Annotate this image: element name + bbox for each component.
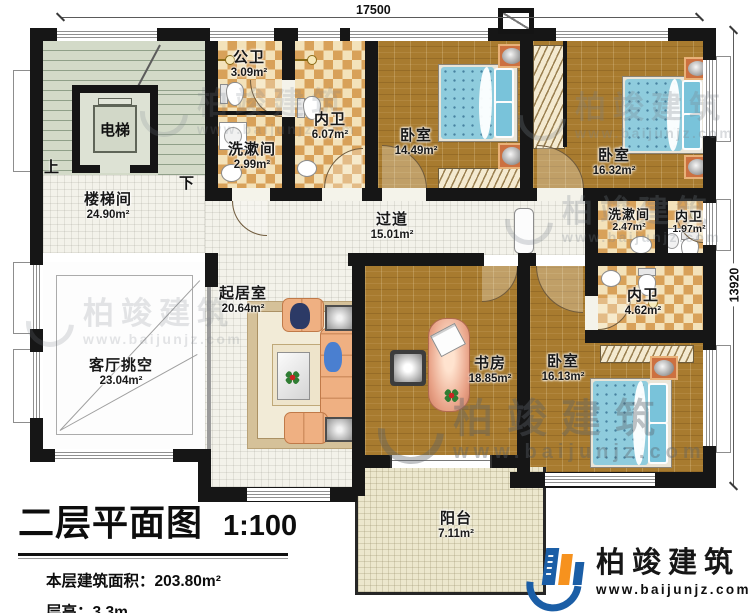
person-lounging (324, 342, 342, 372)
window (210, 28, 274, 41)
stair-down-label: 下 (179, 172, 194, 193)
room-label-hallway: 过道 15.01m² (350, 212, 434, 241)
exterior-sill (716, 345, 731, 453)
wall-hallway-bottom-c (585, 253, 716, 266)
window (57, 28, 157, 41)
bed-pillow (494, 68, 514, 105)
shower-drain (307, 55, 317, 65)
wall-living-study (352, 266, 365, 496)
watermark-logo-icon (495, 187, 563, 255)
floor-height-value: 3.3m (93, 604, 128, 613)
bed-pillow (494, 101, 514, 138)
wall-neiwei-mid-bottom (585, 330, 716, 343)
floor-height-line: 层高：3.3m (46, 600, 288, 613)
room-label-neiwei-small: 内卫 1.97m² (658, 210, 720, 236)
window (55, 449, 173, 462)
wall-hallway-bottom-b (518, 253, 536, 266)
door-gap (232, 188, 270, 201)
wall-neiwei-bedroom1 (365, 41, 378, 201)
floor-area-value: 203.80m² (155, 573, 221, 590)
dimension-right-value: 13920 (727, 264, 741, 307)
sink-icon (601, 270, 621, 287)
floor-area-label: 本层建筑面积： (46, 573, 155, 590)
watermark-name: 柏竣建筑 (575, 90, 727, 125)
watermark-url: www.baijunjz.com (83, 331, 242, 347)
watermark-logo-icon (508, 83, 576, 151)
sofa-main (320, 328, 356, 420)
watermark: 柏竣建筑 www.baijunjz.com (378, 398, 706, 464)
wall-living-void-stub (205, 253, 218, 287)
watermark: 柏竣建筑 www.baijunjz.com (518, 92, 734, 141)
window (556, 28, 668, 41)
wall-hallway-bottom-a (348, 253, 484, 266)
watermark-logo-icon (365, 385, 458, 478)
room-label-gongwei: 公卫 3.09m² (214, 50, 284, 79)
floor-height-label: 层高： (46, 604, 93, 613)
dimension-line-top (60, 17, 700, 18)
door-gap (322, 188, 362, 201)
room-label-neiwei-top: 内卫 6.07m² (295, 112, 365, 141)
dimension-top-value: 17500 (352, 3, 395, 17)
window (298, 28, 340, 41)
watermark-url: www.baijunjz.com (575, 125, 734, 141)
room-label-study: 书房 18.85m² (452, 356, 528, 385)
plan-scale: 1:100 (223, 510, 297, 543)
floor-plan-canvas: 电梯 柏竣建筑 www.baijunjz.com 柏竣建筑 www.baijun… (0, 0, 750, 613)
room-label-xishujian-top: 洗漱间 2.99m² (214, 142, 290, 171)
stair-treads-top (43, 41, 205, 91)
room-label-bedroom1: 卧室 14.49m² (378, 128, 454, 157)
stair-up-label: 上 (44, 156, 59, 177)
door-gap (585, 296, 598, 330)
company-logo-icon (528, 545, 586, 601)
company-url: www.baijunjz.com (596, 582, 750, 597)
flower-decor (285, 370, 300, 385)
tv-monitor (390, 350, 426, 386)
title-block: 二层平面图 1:100 本层建筑面积：203.80m² 层高：3.3m (18, 494, 288, 613)
person-sitting (290, 303, 310, 329)
nightstand (650, 356, 678, 380)
room-label-living: 起居室 20.64m² (204, 286, 282, 315)
room-label-void: 客厅挑空 23.04m² (68, 358, 174, 387)
plan-title: 二层平面图 (18, 494, 203, 546)
side-table-top (325, 305, 354, 331)
side-table-bottom (325, 417, 354, 442)
company-logo: 柏竣建筑 www.baijunjz.com (528, 545, 750, 601)
room-label-neiwei-mid: 内卫 4.62m² (606, 288, 680, 317)
sink-icon (297, 160, 317, 177)
window (545, 473, 655, 486)
chimney-box (498, 8, 534, 34)
armchair-bottom (284, 412, 328, 444)
closet-bedroom3 (600, 345, 694, 363)
logo-building-bar (573, 562, 585, 585)
watermark-logo-icon (16, 289, 84, 357)
room-label-balcony: 阳台 7.11m² (418, 511, 494, 540)
room-label-xishujian-right: 洗漱间 2.47m² (590, 208, 668, 234)
window (350, 28, 488, 41)
door-gap (382, 188, 426, 201)
floor-area-line: 本层建筑面积：203.80m² (46, 569, 288, 591)
room-label-bedroom3: 卧室 16.13m² (524, 354, 602, 383)
window (30, 352, 43, 418)
company-name: 柏竣建筑 (596, 549, 750, 578)
watermark-name: 柏竣建筑 (453, 397, 669, 441)
plan-title-row: 二层平面图 1:100 (18, 494, 288, 556)
watermark-logo-icon (130, 79, 198, 147)
room-label-bedroom2: 卧室 16.32m² (576, 148, 652, 177)
watermark-url: www.baijunjz.com (453, 441, 706, 464)
room-label-stairwell: 楼梯间 24.90m² (56, 192, 160, 221)
closet-bedroom1 (438, 168, 522, 190)
